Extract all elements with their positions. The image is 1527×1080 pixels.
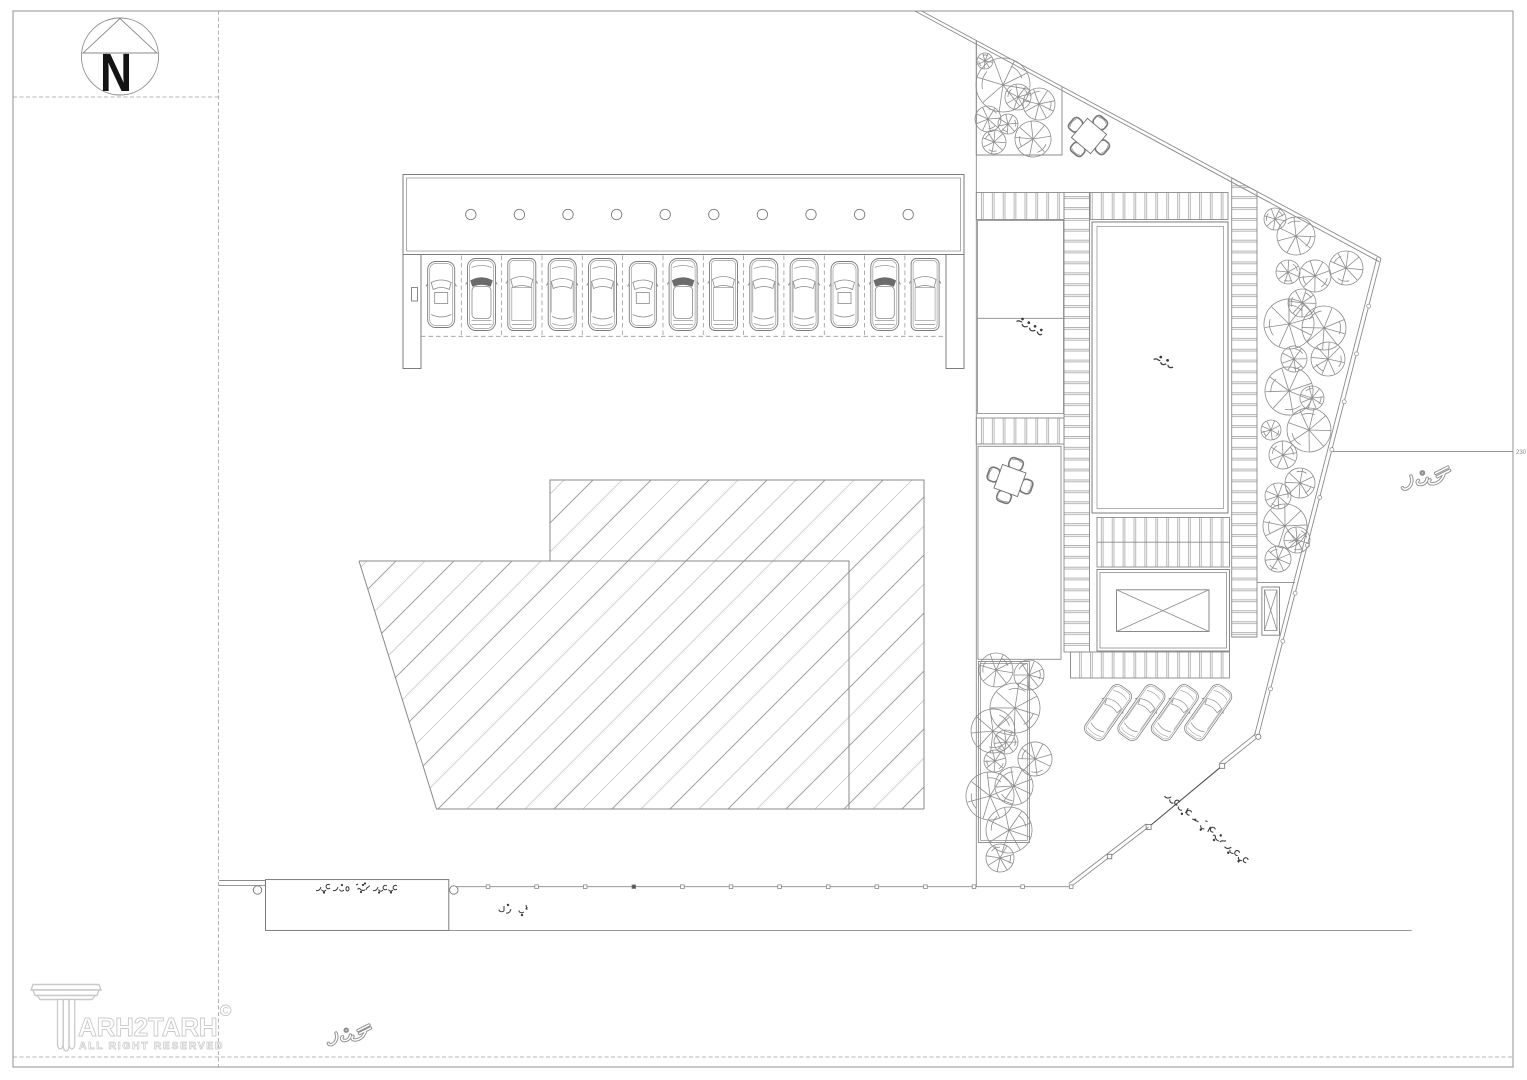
svg-text:N: N — [100, 43, 132, 103]
svg-text:230: 230 — [1516, 450, 1527, 456]
svg-text:C: C — [222, 1006, 229, 1016]
svg-text:ALL RIGHT RESERVED: ALL RIGHT RESERVED — [79, 1040, 224, 1052]
svg-text:ARH2TARH: ARH2TARH — [78, 1012, 217, 1042]
